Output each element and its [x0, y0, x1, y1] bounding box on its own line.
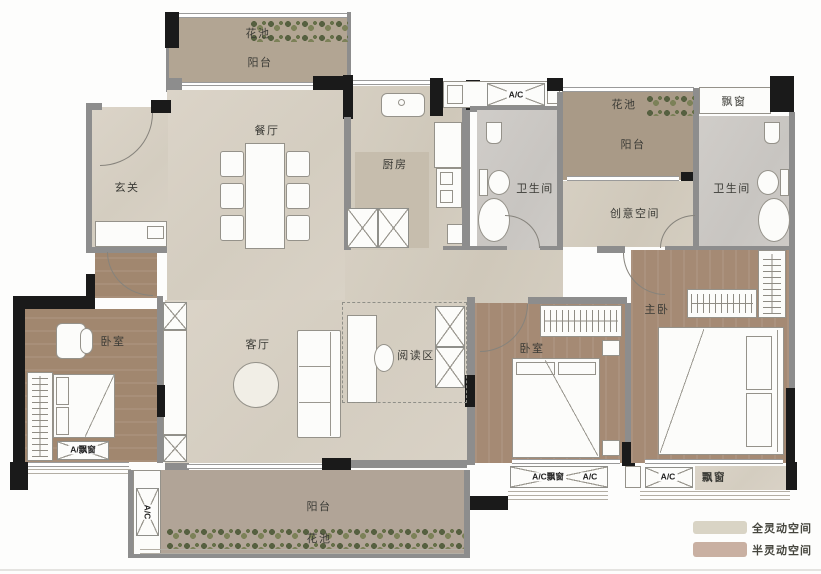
stove-burner — [440, 172, 453, 185]
kitchen-faucet — [398, 99, 405, 106]
wall — [343, 75, 353, 119]
room-label-flower-bottom: 花池 — [307, 530, 332, 546]
planter-top-right — [646, 94, 694, 116]
bay-mid-label: A/C飘窗 — [530, 472, 566, 481]
legend-label-semi-flex: 半灵动空间 — [752, 542, 812, 558]
shoe-cabinet-appliance — [147, 226, 164, 239]
wall — [789, 250, 795, 390]
ac-left-label: A/C — [140, 505, 153, 520]
wardrobe — [27, 372, 53, 461]
tv-cabinet — [163, 330, 187, 435]
room-label-balcony-tl: 阳台 — [248, 54, 273, 70]
bed-fold-line — [85, 375, 114, 437]
floor-plan: 花池 阳台 玄关 餐厅 厨房 A/C 卫生间 — [0, 0, 821, 574]
room-label-bath-left: 卫生间 — [516, 180, 554, 196]
louvre — [27, 468, 131, 474]
wall — [157, 296, 163, 463]
ac-top-label: A/C — [507, 90, 526, 99]
wall-sink — [764, 122, 780, 144]
desk-chair — [80, 328, 93, 354]
wall — [786, 388, 795, 464]
toilet-bowl — [488, 170, 510, 195]
wall — [86, 107, 92, 252]
wall — [470, 496, 508, 510]
bed-fold-line — [545, 360, 598, 456]
corridor — [345, 250, 563, 303]
sofa-seat-line — [299, 366, 331, 367]
dining-chair — [286, 215, 310, 241]
room-label-kitchen: 厨房 — [383, 156, 408, 172]
room-label-master: 主卧 — [645, 301, 670, 317]
toilet-tank — [780, 169, 789, 196]
wall — [462, 108, 470, 250]
wall — [151, 100, 171, 113]
louvre — [640, 490, 790, 500]
stove-burner — [440, 190, 453, 203]
wall — [13, 296, 95, 309]
toilet-tank — [479, 169, 488, 196]
wall — [13, 296, 25, 472]
round-rug — [233, 362, 279, 408]
wardrobe — [758, 250, 786, 318]
dining-chair — [220, 151, 244, 177]
wall — [597, 246, 625, 253]
room-label-bedroom-left: 卧室 — [101, 333, 126, 349]
wall — [528, 297, 627, 304]
legend-swatch-semi-flex — [693, 542, 747, 557]
room-label-living: 客厅 — [246, 336, 271, 352]
window-casement — [447, 85, 463, 104]
legend-label-full-flex: 全灵动空间 — [752, 520, 812, 536]
nightstand — [602, 340, 620, 356]
sofa — [297, 330, 341, 438]
nightstand — [602, 440, 620, 456]
dining-chair — [286, 151, 310, 177]
wall — [430, 78, 443, 116]
pillow — [746, 336, 772, 390]
window-balcony-tl — [170, 13, 348, 18]
headboard-line — [777, 330, 778, 452]
room-label-balcony-bottom: 阳台 — [307, 498, 332, 514]
room-label-dining: 餐厅 — [255, 122, 280, 138]
page-bottom-line — [0, 569, 821, 571]
pillow — [56, 377, 69, 405]
room-label-bedroom-mid: 卧室 — [520, 340, 545, 356]
wall — [464, 470, 470, 554]
toilet-bowl — [757, 170, 779, 195]
pillow — [746, 393, 772, 447]
room-label-reading: 阅读区 — [397, 347, 435, 363]
window-bedroom-left — [27, 462, 129, 467]
legend-swatch-full-flex — [693, 521, 747, 534]
dining-chair — [286, 183, 310, 209]
master-door-arc — [623, 253, 665, 295]
wall — [10, 462, 28, 490]
wall — [547, 78, 563, 91]
kitchen-counter — [434, 122, 462, 168]
window-balcony-tr — [563, 87, 694, 92]
louvre — [508, 489, 608, 500]
bay-br-label: 飘窗 — [702, 470, 726, 485]
kitchen-corner-cabinet — [447, 224, 463, 244]
wardrobe — [540, 305, 622, 337]
room-label-foyer: 玄关 — [115, 179, 140, 195]
room-label-flower-tr: 花池 — [612, 96, 637, 112]
window-kitchen — [353, 80, 430, 85]
pillow — [56, 407, 69, 435]
room-label-bath-right: 卫生间 — [713, 180, 751, 196]
window-living-balcony — [187, 464, 322, 469]
dining-table — [245, 143, 285, 249]
dining-chair — [220, 183, 244, 209]
kitchen-cabinet — [378, 208, 409, 248]
bed-fold-line — [660, 329, 704, 453]
window-bedroom-mid — [512, 459, 620, 464]
wall — [165, 12, 179, 48]
bay-pillar — [625, 466, 641, 488]
wall — [351, 460, 467, 468]
wall — [789, 112, 795, 250]
sofa-seat-line — [299, 402, 331, 403]
room-label-creative: 创意空间 — [610, 205, 660, 221]
room-label-flower-tl: 花池 — [246, 25, 271, 41]
tv-cabinet-end — [163, 302, 187, 330]
dining-chair — [220, 215, 244, 241]
wall — [128, 554, 470, 558]
kitchen-cabinet — [347, 208, 378, 248]
ac-right-label: A/C — [659, 472, 678, 481]
tv-cabinet-end — [163, 435, 187, 462]
bay-left-label: A/飘窗 — [68, 445, 98, 454]
sliding-door-balcony-tl — [182, 82, 313, 86]
window-master — [645, 459, 783, 464]
ac-mid-label: A/C — [581, 472, 600, 481]
wall — [786, 462, 797, 490]
sofa-back-line — [330, 332, 331, 436]
wall — [770, 76, 794, 112]
wall — [165, 463, 189, 470]
wall-sink — [486, 122, 502, 144]
room-label-balcony-tr: 阳台 — [621, 136, 646, 152]
wardrobe — [687, 289, 757, 318]
bay-tr-label: 飘窗 — [722, 93, 747, 109]
basin — [758, 198, 790, 242]
